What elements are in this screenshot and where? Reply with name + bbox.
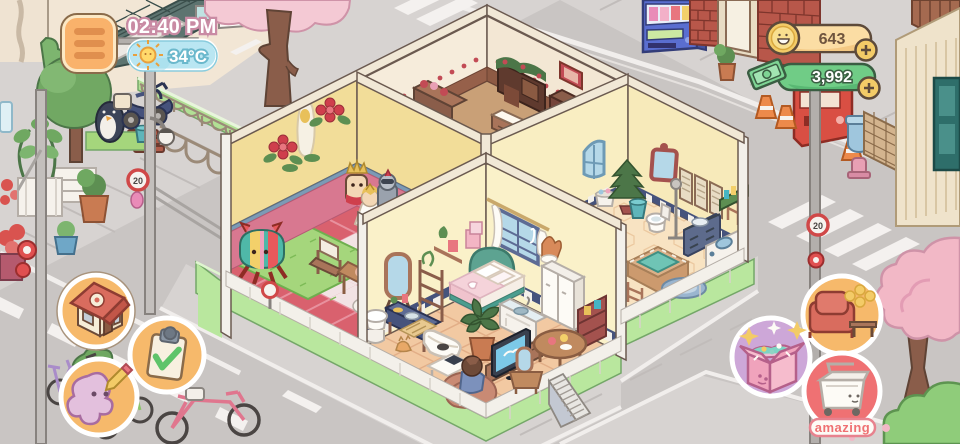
svg-text:3,992: 3,992 <box>812 69 852 86</box>
svg-text:20: 20 <box>813 221 823 231</box>
svg-text:643: 643 <box>819 31 846 48</box>
svg-text:34°C: 34°C <box>169 47 207 66</box>
svg-text:20: 20 <box>133 176 143 186</box>
svg-text:amazing: amazing <box>815 420 871 435</box>
svg-text:02:40 PM: 02:40 PM <box>127 16 216 38</box>
